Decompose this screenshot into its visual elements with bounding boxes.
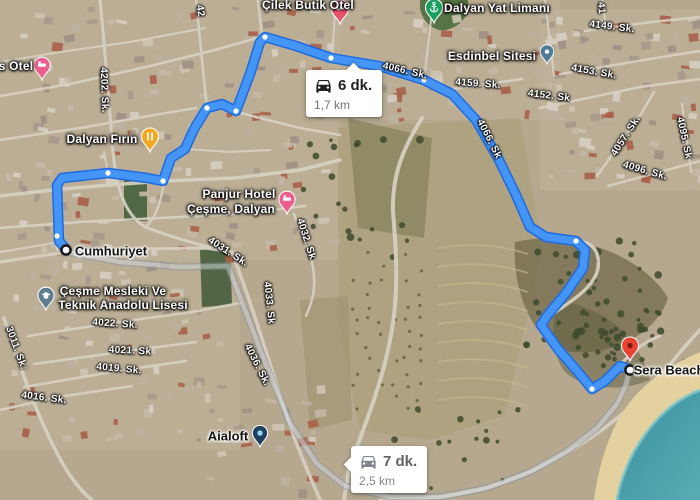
label-4152-sk: 4152. Sk: [527, 88, 570, 104]
label-4066-sk-1: 4066. Sk: [474, 118, 503, 161]
label-42: 42: [194, 4, 207, 17]
label-teknik-anadolu-lisesi[interactable]: Teknik Anadolu Lisesi: [58, 298, 188, 312]
label-cumhuriyet[interactable]: Cumhuriyet: [75, 244, 147, 259]
label-41: 41: [595, 2, 607, 15]
label-4033-sk: 4033. Sk: [261, 281, 276, 324]
label-4036-sk: 4036. Sk.: [242, 342, 272, 388]
label-4159-sk: 4159. Sk.: [455, 77, 501, 91]
car-icon: [359, 452, 378, 471]
label-4019-sk: 4019. Sk.: [96, 362, 142, 377]
alternate-route-time: 7 dk.: [383, 454, 417, 469]
label-4021-sk: 4021. Sk: [109, 344, 152, 357]
label-4031-sk: 4031. Sk.: [206, 235, 250, 269]
label-cesme-dalyan[interactable]: Çeşme, Dalyan: [187, 202, 275, 216]
label-dalyan-yat-limani[interactable]: Dalyan Yat Limanı: [444, 1, 550, 15]
label-4096-sk: 4096. Sk.: [622, 159, 669, 182]
alternate-route-distance: 2,5 km: [359, 475, 417, 487]
label-esdinbel-sitesi[interactable]: Esdinbel Sitesi: [448, 49, 536, 63]
label-dalyan-firin[interactable]: Dalyan Fırın: [66, 132, 137, 146]
label-4066-sk: 4066. Sk.: [382, 61, 429, 82]
label-sera-beach[interactable]: Sera Beach: [634, 363, 700, 378]
label-aialoft[interactable]: Aialoft: [208, 429, 248, 444]
route-info-primary[interactable]: 6 dk. 1,7 km: [306, 70, 382, 117]
label-4153-sk: 4153. Sk.: [571, 63, 618, 82]
label-4022-sk: 4022. Sk.: [92, 317, 138, 331]
map-canvas[interactable]: Çilek Butik OtelDalyan Yat Limanıs OtelD…: [0, 0, 700, 500]
route-info-alternate[interactable]: 7 dk. 2,5 km: [351, 446, 427, 493]
label-4057-sk: 4057. Sk.: [609, 114, 643, 158]
label-4016-sk: 4016. Sk.: [21, 390, 68, 406]
label-4032-sk: 4032. Sk: [294, 217, 318, 261]
primary-route-time: 6 dk.: [338, 78, 372, 93]
label-panjur-hotel[interactable]: Panjur Hotel: [202, 187, 275, 201]
label-cesme-mesleki-ve[interactable]: Çeşme Mesleki Ve: [60, 284, 167, 298]
label-4202-sk: 4202. Sk.: [98, 67, 111, 113]
label-3011-sk: 3011. Sk.: [3, 325, 29, 371]
primary-route-distance: 1,7 km: [314, 99, 372, 111]
label-s-otel[interactable]: s Otel: [0, 59, 33, 73]
car-icon: [314, 76, 333, 95]
label-cilek-butik-otel[interactable]: Çilek Butik Otel: [262, 0, 354, 12]
label-4149-sk: 4149. Sk.: [589, 19, 636, 35]
label-4095-sk: 4095. Sk: [674, 116, 694, 160]
